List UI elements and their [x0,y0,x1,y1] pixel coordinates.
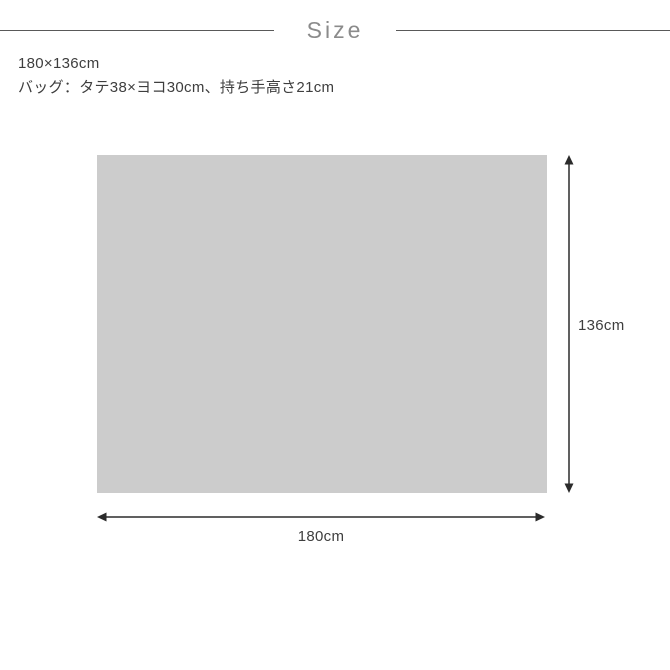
width-arrow-head-right-icon [536,513,546,522]
size-info-panel: Size 180×136cm バッグ：タテ38×ヨコ30cm、持ち手高さ21cm… [0,0,670,670]
overall-size-text: 180×136cm [18,52,334,76]
height-dimension-arrow [565,155,574,493]
width-arrow-head-left-icon [97,513,107,522]
header-divider-right [396,30,670,31]
size-description: 180×136cm バッグ：タテ38×ヨコ30cm、持ち手高さ21cm [18,52,334,100]
bag-size-text: バッグ：タテ38×ヨコ30cm、持ち手高さ21cm [18,76,334,100]
header-divider-left [0,30,274,31]
height-arrow-head-bottom-icon [565,484,574,494]
section-header: Size [0,0,670,60]
size-diagram [0,0,670,670]
product-rectangle [97,155,547,493]
height-dimension-label: 136cm [578,318,625,333]
height-arrow-head-top-icon [565,155,574,165]
page-title: Size [307,19,364,42]
width-dimension-label: 180cm [97,529,545,544]
width-dimension-arrow [97,513,545,522]
